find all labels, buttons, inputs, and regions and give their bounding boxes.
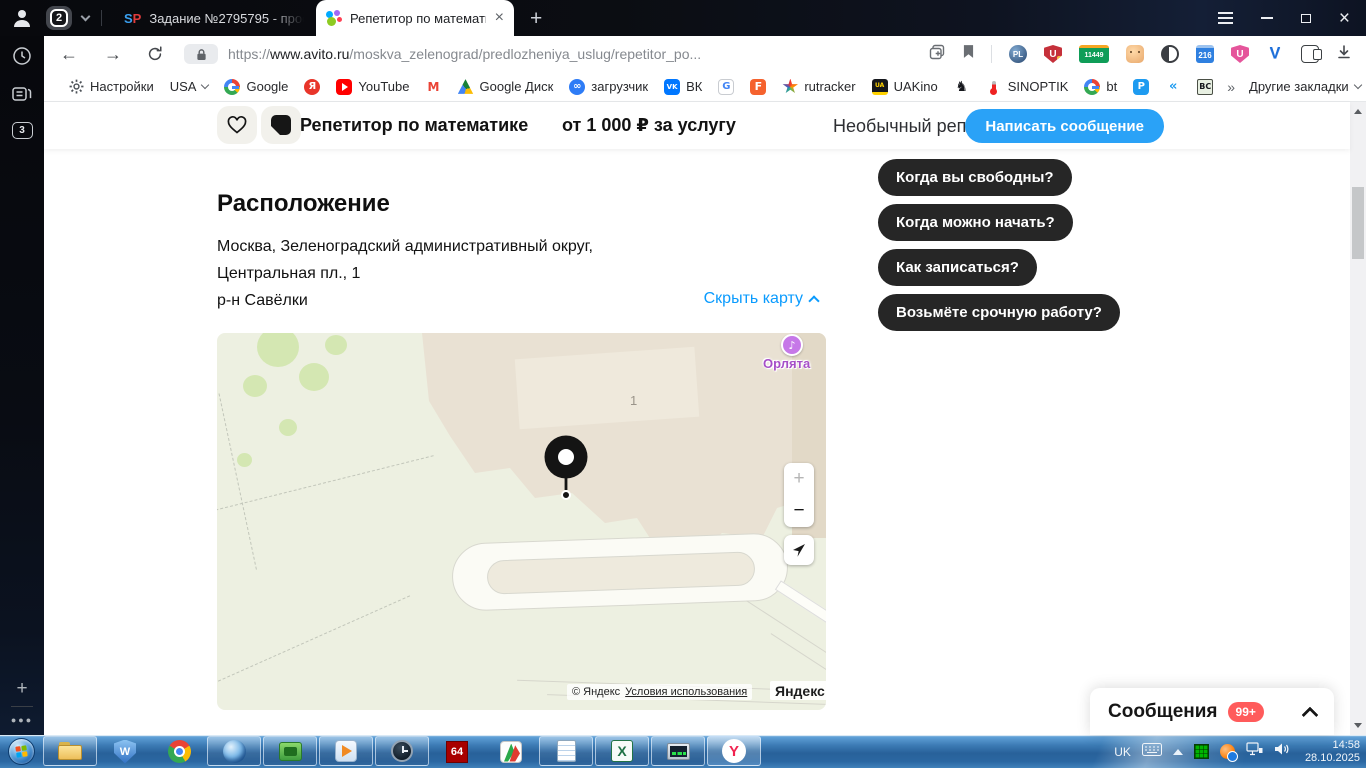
language-indicator[interactable]: UK xyxy=(1114,745,1131,759)
location-address: Москва, Зеленоградский административный … xyxy=(217,233,593,314)
bookmark-loader[interactable]: ∞ загрузчик xyxy=(561,75,656,99)
tab-group-counter[interactable]: 2 xyxy=(46,6,72,30)
menu-icon[interactable] xyxy=(1218,17,1233,19)
tab-group-chevron-icon[interactable] xyxy=(81,12,91,22)
toolbar-divider xyxy=(991,45,992,63)
chevron-up-icon xyxy=(808,295,819,306)
minimize-button[interactable] xyxy=(1261,17,1273,19)
address-line: Центральная пл., 1 xyxy=(217,260,593,287)
taskbar-excel[interactable]: X xyxy=(595,736,649,766)
yandex-maps-logo[interactable]: Яндекс xyxy=(770,681,826,700)
url-scheme: https:// xyxy=(228,46,270,62)
feed-cards-icon[interactable] xyxy=(11,84,33,109)
tray-clock[interactable]: 14:58 28.10.2025 xyxy=(1301,739,1360,765)
bookmark-bc-site[interactable]: BC xyxy=(1189,75,1221,99)
bookmarks-bar: Настройки USA Google Я YouTube M Google … xyxy=(44,72,1366,102)
taskbar-explorer[interactable] xyxy=(43,736,97,766)
bookmark-settings[interactable]: Настройки xyxy=(60,75,162,99)
tab-close-icon[interactable]: × xyxy=(495,10,504,26)
shield-icon: W xyxy=(114,740,136,764)
bookmark-uakino[interactable]: UA UAKino xyxy=(864,75,946,99)
bookmark-sinoptik[interactable]: SINOPTIK xyxy=(978,75,1077,99)
taskbar-aida64[interactable]: 64 xyxy=(430,735,484,768)
windows-logo-icon xyxy=(8,738,35,765)
bookmarks-overflow-icon[interactable]: » xyxy=(1221,79,1241,95)
taskbar-clock-app[interactable] xyxy=(375,736,429,766)
play-icon xyxy=(335,740,357,762)
tabbar-divider xyxy=(101,10,102,26)
quick-reply-button[interactable]: Как записаться? xyxy=(878,249,1037,286)
address-line: Москва, Зеленоградский административный … xyxy=(217,233,593,260)
downloads-icon[interactable] xyxy=(1336,44,1352,65)
address-line: р-н Савёлки xyxy=(217,287,593,314)
tray-date: 28.10.2025 xyxy=(1305,752,1360,765)
other-bookmarks[interactable]: Другие закладки xyxy=(1241,75,1366,99)
page-content: Репетитор по математике от 1 000 ₽ за ус… xyxy=(44,102,1350,735)
forward-button[interactable]: → xyxy=(104,45,122,63)
start-button[interactable] xyxy=(0,735,42,768)
translate-icon: G xyxy=(718,79,734,95)
google-icon xyxy=(224,79,240,95)
bookmark-youtube[interactable]: YouTube xyxy=(328,75,417,99)
messages-panel[interactable]: Сообщения 99+ xyxy=(1090,688,1334,735)
tab-group-count: 2 xyxy=(50,9,68,27)
listing-sticky-header: Репетитор по математике от 1 000 ₽ за ус… xyxy=(44,102,1350,149)
history-icon[interactable] xyxy=(12,46,32,71)
note-icon xyxy=(271,115,291,135)
quick-reply-button[interactable]: Когда вы свободны? xyxy=(878,159,1072,196)
profile-avatar-icon[interactable] xyxy=(10,6,34,30)
bookmark-gtranslate[interactable]: G xyxy=(710,75,742,99)
bookmark-gmail[interactable]: M xyxy=(418,75,450,99)
yandex-icon: Я xyxy=(304,79,320,95)
windows-taskbar: W 64 X Y UK 14:58 28.10 xyxy=(0,735,1366,768)
gmail-icon: M xyxy=(426,79,442,95)
bookmark-f-site[interactable]: F xyxy=(742,75,774,99)
location-heading: Расположение xyxy=(217,190,390,218)
rutracker-icon xyxy=(782,79,798,95)
taskbar-browser-globe[interactable] xyxy=(207,736,261,766)
capture-icon xyxy=(500,741,522,763)
navigation-arrow-icon xyxy=(790,541,808,559)
f-icon: F xyxy=(750,79,766,95)
scrollbar-thumb[interactable] xyxy=(1352,187,1364,259)
keyboard-icon[interactable] xyxy=(1142,743,1162,761)
scroll-up-arrow[interactable] xyxy=(1354,109,1362,114)
map-attribution: © Яндекс Условия использования xyxy=(567,684,752,700)
taskbar-chrome[interactable] xyxy=(152,735,206,768)
map-canvas[interactable]: 1 ♪ Орлята + − © Яндекс Условия использо… xyxy=(217,333,826,710)
note-button[interactable] xyxy=(261,106,301,144)
listing-price: от 1 000 ₽ за услугу xyxy=(562,115,736,136)
clock-icon xyxy=(391,740,413,762)
bookmark-bt[interactable]: bt xyxy=(1076,75,1125,99)
yandex-browser-icon: Y xyxy=(722,739,746,763)
browser-tab-active[interactable]: Репетитор по математи × xyxy=(316,0,514,36)
close-window-button[interactable]: × xyxy=(1339,9,1350,28)
new-tab-button[interactable]: + xyxy=(530,8,542,29)
bookmark-google[interactable]: Google xyxy=(216,75,296,99)
youtube-icon xyxy=(336,79,352,95)
chip-icon xyxy=(279,742,302,761)
taskbar-wondershare[interactable]: W xyxy=(98,735,152,768)
excel-icon: X xyxy=(611,740,633,762)
tray-time: 14:58 xyxy=(1305,739,1360,752)
system-tray: UK 14:58 28.10.2025 xyxy=(1114,735,1366,768)
tab-preview-icon[interactable] xyxy=(928,43,946,66)
globe-icon xyxy=(223,740,246,763)
taskbar-notepad[interactable] xyxy=(539,736,593,766)
network-icon[interactable] xyxy=(1246,742,1263,761)
p-icon: P xyxy=(1133,79,1149,95)
sidebar-more-icon[interactable]: ●●● xyxy=(11,715,33,725)
chrome-icon xyxy=(168,740,191,763)
loader-icon: ∞ xyxy=(569,79,585,95)
show-hidden-icons[interactable] xyxy=(1173,749,1183,755)
baby-extension-icon[interactable] xyxy=(1126,45,1144,63)
bookmark-yandex[interactable]: Я xyxy=(296,75,328,99)
avito-favicon xyxy=(326,10,342,26)
hide-map-link[interactable]: Скрыть карту xyxy=(704,290,818,308)
thermometer-icon xyxy=(986,79,1002,95)
taskbar-media-player[interactable] xyxy=(319,736,373,766)
zoom-in-button[interactable]: + xyxy=(784,463,814,495)
bookmark-p-site[interactable]: P xyxy=(1125,75,1157,99)
volume-icon[interactable] xyxy=(1274,742,1290,761)
extensions-row: PL U! 11449 216 U V xyxy=(928,43,1366,66)
building-number-label: 1 xyxy=(630,393,637,408)
music-poi-icon[interactable]: ♪ xyxy=(781,334,803,356)
tab-title: Репетитор по математи xyxy=(350,11,486,26)
bookmark-flag-icon[interactable] xyxy=(963,44,974,64)
terms-of-use-link[interactable]: Условия использования xyxy=(625,686,747,698)
taskbar-yandex-browser[interactable]: Y xyxy=(707,736,761,766)
gear-icon xyxy=(68,79,84,95)
tab-stack-counter[interactable]: 3 xyxy=(12,122,33,139)
zoom-out-button[interactable]: − xyxy=(784,495,814,527)
taskbar-faststone[interactable] xyxy=(484,735,538,768)
chevrons-icon: « xyxy=(1165,79,1181,95)
calendar-extension-icon[interactable]: 216 xyxy=(1196,45,1214,63)
monitor-icon xyxy=(667,743,690,760)
map-zoom-controls: + − xyxy=(784,463,814,527)
devices-extension-icon[interactable] xyxy=(1301,45,1319,63)
restore-button[interactable] xyxy=(1301,14,1311,23)
bookmark-vk[interactable]: VK ВК xyxy=(656,75,710,99)
browser-toolbar: ← → https://www.avito.ru/moskva_zelenogr… xyxy=(44,36,1366,72)
counter-extension-icon[interactable]: 11449 xyxy=(1079,45,1109,63)
folder-icon xyxy=(58,742,82,760)
alert-badge: ! xyxy=(1057,56,1067,66)
scroll-down-arrow[interactable] xyxy=(1354,723,1362,728)
dark-mode-extension-icon[interactable] xyxy=(1161,45,1179,63)
chevron-up-icon[interactable] xyxy=(1302,706,1319,723)
bookmark-google-drive[interactable]: Google Диск xyxy=(450,75,562,99)
chess-knight-icon: ♞ xyxy=(954,79,970,95)
tray-monitor-icon[interactable] xyxy=(1194,744,1209,759)
bookmark-chess[interactable]: ♞ xyxy=(946,75,978,99)
site-security-lock-icon[interactable] xyxy=(184,44,218,64)
browser-side-panel: 3 + ●●● xyxy=(0,36,44,735)
write-message-button[interactable]: Написать сообщение xyxy=(965,109,1164,143)
google-drive-icon xyxy=(458,79,474,95)
taskbar-hw-monitor[interactable] xyxy=(651,736,705,766)
url-domain: www.avito.ru xyxy=(270,46,349,62)
taskbar-hardware-tool[interactable] xyxy=(263,736,317,766)
chevron-down-icon xyxy=(1353,81,1361,89)
page-scrollbar[interactable] xyxy=(1350,102,1366,735)
messages-label: Сообщения xyxy=(1108,701,1218,723)
bookmark-rutracker[interactable]: rutracker xyxy=(774,75,863,99)
chevron-down-icon xyxy=(201,81,209,89)
favorite-button[interactable] xyxy=(217,106,257,144)
sp-favicon: SP xyxy=(124,11,141,26)
bookmark-chevrons-site[interactable]: « xyxy=(1157,75,1189,99)
bc-icon: BC xyxy=(1197,79,1213,95)
tab-title: Задание №2795795 - прос xyxy=(149,11,304,26)
url-path: /moskva_zelenograd/predlozheniya_uslug/r… xyxy=(349,46,701,62)
bookmark-folder-usa[interactable]: USA xyxy=(162,75,217,99)
browser-titlebar: 2 SP Задание №2795795 - прос Репетитор п… xyxy=(0,0,1366,36)
listing-title: Репетитор по математике xyxy=(300,115,528,136)
browser-tab-inactive[interactable]: SP Задание №2795795 - прос xyxy=(114,4,314,32)
proxy-globe-extension-icon[interactable]: PL xyxy=(1009,45,1027,63)
back-button[interactable]: ← xyxy=(60,45,78,63)
tray-app-icon[interactable] xyxy=(1220,744,1235,759)
aida64-icon: 64 xyxy=(446,741,468,763)
location-pin-icon xyxy=(542,433,590,510)
poi-label[interactable]: Орлята xyxy=(763,356,810,371)
sidebar-divider xyxy=(11,706,33,707)
unread-badge: 99+ xyxy=(1228,702,1264,722)
map-copyright: © Яндекс xyxy=(572,686,620,698)
google-icon xyxy=(1084,79,1100,95)
pink-shield-extension-icon[interactable]: U xyxy=(1231,45,1249,63)
sidebar-add-icon[interactable]: + xyxy=(16,679,27,698)
red-shield-extension-icon[interactable]: U! xyxy=(1044,45,1062,63)
quick-reply-button[interactable]: Когда можно начать? xyxy=(878,204,1073,241)
quick-replies: Когда вы свободны? Когда можно начать? К… xyxy=(878,159,1120,331)
address-bar[interactable]: https://www.avito.ru/moskva_zelenograd/p… xyxy=(228,46,701,62)
geolocation-button[interactable] xyxy=(784,535,814,565)
heart-icon xyxy=(226,115,248,135)
vk-icon: VK xyxy=(664,79,680,95)
notepad-icon xyxy=(557,740,576,762)
quick-reply-button[interactable]: Возьмёте срочную работу? xyxy=(878,294,1120,331)
reload-button[interactable] xyxy=(146,45,164,63)
uakino-icon: UA xyxy=(872,79,888,95)
window-controls: × xyxy=(1218,0,1350,36)
v-extension-icon[interactable]: V xyxy=(1266,45,1284,63)
